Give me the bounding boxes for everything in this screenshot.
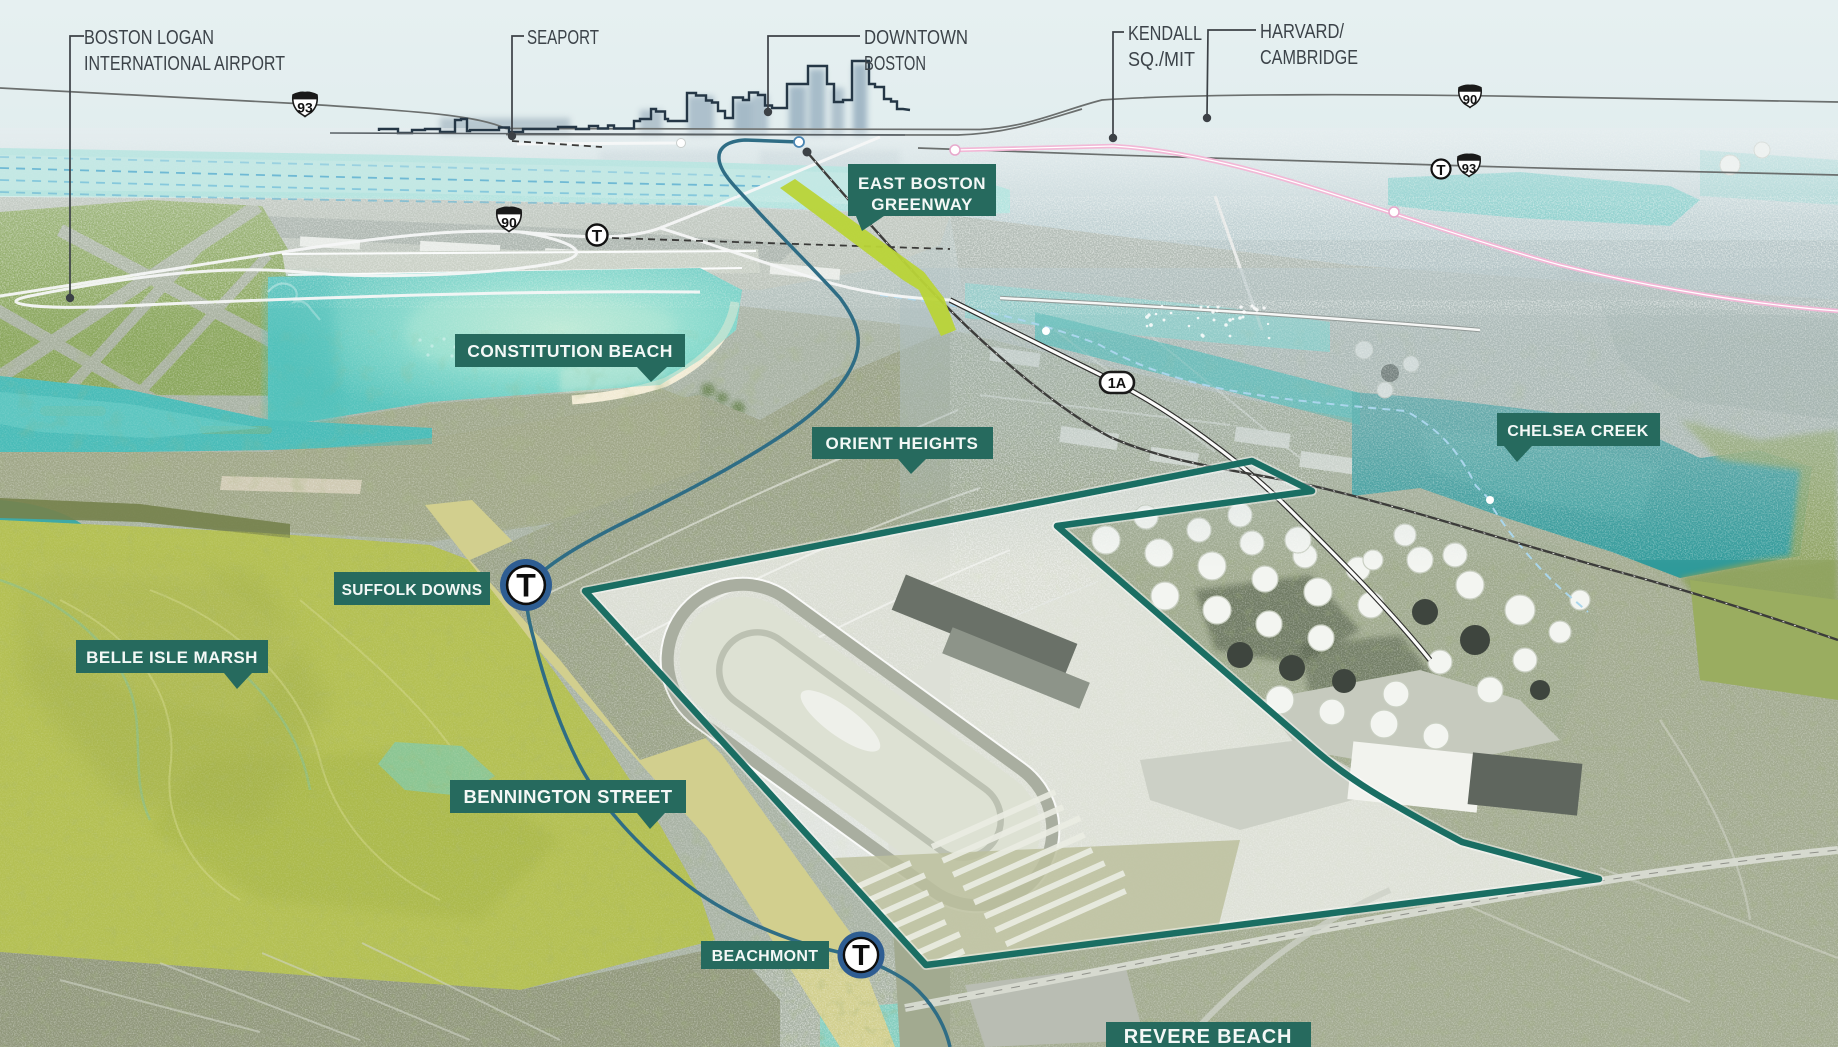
svg-text:SQ./MIT: SQ./MIT xyxy=(1128,48,1195,71)
svg-text:CHELSEA CREEK: CHELSEA CREEK xyxy=(1507,423,1649,440)
svg-text:1A: 1A xyxy=(1108,376,1127,392)
svg-text:SEAPORT: SEAPORT xyxy=(527,26,599,49)
svg-text:T: T xyxy=(592,227,603,246)
svg-text:90: 90 xyxy=(501,215,517,231)
svg-text:93: 93 xyxy=(297,100,313,116)
svg-text:EAST BOSTON: EAST BOSTON xyxy=(858,174,986,193)
svg-text:BEACHMONT: BEACHMONT xyxy=(712,948,819,965)
svg-text:T: T xyxy=(852,940,870,972)
svg-text:CAMBRIDGE: CAMBRIDGE xyxy=(1260,46,1358,69)
svg-text:ORIENT HEIGHTS: ORIENT HEIGHTS xyxy=(826,434,979,453)
svg-text:T: T xyxy=(1436,162,1445,179)
svg-text:DOWNTOWN: DOWNTOWN xyxy=(864,26,968,49)
svg-text:BELLE ISLE MARSH: BELLE ISLE MARSH xyxy=(86,648,258,667)
svg-text:BOSTON LOGAN: BOSTON LOGAN xyxy=(84,26,214,49)
svg-text:INTERNATIONAL AIRPORT: INTERNATIONAL AIRPORT xyxy=(84,52,285,75)
svg-text:90: 90 xyxy=(1463,92,1477,107)
svg-text:REVERE BEACH: REVERE BEACH xyxy=(1124,1026,1293,1047)
svg-text:CONSTITUTION BEACH: CONSTITUTION BEACH xyxy=(467,341,673,361)
svg-text:SUFFOLK DOWNS: SUFFOLK DOWNS xyxy=(342,582,483,599)
svg-text:KENDALL: KENDALL xyxy=(1128,22,1202,45)
svg-text:BOSTON: BOSTON xyxy=(864,52,926,75)
svg-text:93: 93 xyxy=(1462,161,1476,176)
svg-text:BENNINGTON STREET: BENNINGTON STREET xyxy=(464,786,673,807)
svg-text:GREENWAY: GREENWAY xyxy=(871,195,973,214)
svg-text:T: T xyxy=(516,568,536,604)
svg-text:HARVARD/: HARVARD/ xyxy=(1260,20,1344,43)
